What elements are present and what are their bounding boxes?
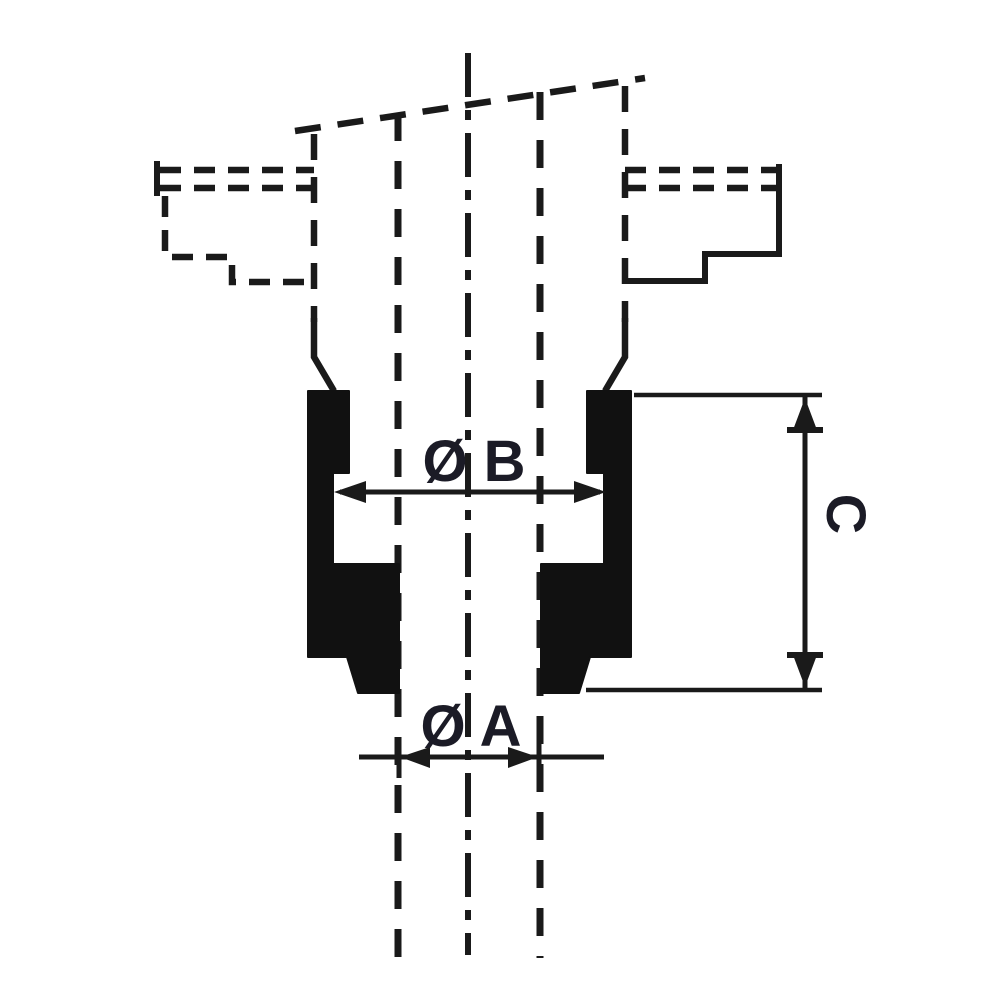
- dimension-b: Ø B: [334, 429, 606, 503]
- axis-and-cable-lines: [398, 53, 540, 958]
- grommet-right-half: [541, 391, 631, 693]
- dim-c-arrowhead-top: [793, 398, 817, 430]
- dim-b-arrowhead-left: [334, 481, 366, 503]
- right-latch-wing: [625, 164, 779, 281]
- drawing-canvas: Ø B Ø A C: [0, 0, 1000, 1000]
- dim-b-label: Ø B: [422, 429, 525, 494]
- left-wing-step-outline-dashed: [165, 196, 314, 282]
- left-latch-wing: [157, 161, 314, 282]
- right-wing-step-outline: [628, 164, 779, 281]
- dim-c-label: C: [815, 494, 878, 534]
- grommet-left-half: [308, 391, 399, 693]
- dim-c-arrowhead-bottom: [793, 655, 817, 687]
- connector-right-flare: [605, 318, 625, 391]
- dim-b-arrowhead-right: [574, 481, 606, 503]
- technical-drawing: Ø B Ø A C: [0, 0, 1000, 1000]
- connector-left-flare: [314, 318, 334, 391]
- dim-a-label: Ø A: [421, 694, 522, 759]
